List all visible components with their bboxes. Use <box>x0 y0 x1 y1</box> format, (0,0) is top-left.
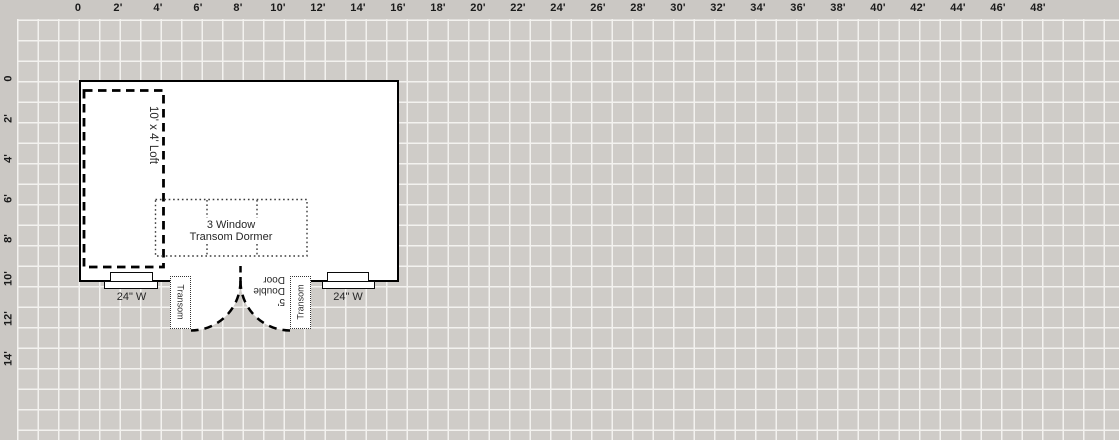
ruler-label-top: 16' <box>378 2 418 14</box>
ruler-label-top: 34' <box>738 2 778 14</box>
ruler-vertical: 02'4'6'8'10'12'14' <box>0 0 17 440</box>
dormer-label: 3 Window Transom Dormer <box>188 218 275 244</box>
ruler-label-left: 4' <box>0 138 17 178</box>
ruler-label-top: 10' <box>258 2 298 14</box>
ruler-label-top: 8' <box>218 2 258 14</box>
ruler-label-top: 14' <box>338 2 378 14</box>
ruler-horizontal: 02'4'6'8'10'12'14'16'18'20'22'24'26'28'3… <box>0 0 1119 19</box>
design-canvas[interactable]: 10' x 4' Loft 3 Window Transom Dormer 24… <box>0 0 1119 440</box>
loft-label: 10' x 4' Loft <box>147 106 159 164</box>
ruler-label-top: 4' <box>138 2 178 14</box>
ruler-label-top: 20' <box>458 2 498 14</box>
ruler-label-top: 42' <box>898 2 938 14</box>
ruler-label-top: 48' <box>1018 2 1058 14</box>
ruler-label-left: 8' <box>0 218 17 258</box>
ruler-label-top: 12' <box>298 2 338 14</box>
building-footprint[interactable] <box>79 80 399 282</box>
ruler-label-top: 18' <box>418 2 458 14</box>
ruler-label-top: 0 <box>58 2 98 14</box>
transom-right-label: Transom <box>296 285 306 320</box>
ruler-label-top: 38' <box>818 2 858 14</box>
ruler-label-top: 32' <box>698 2 738 14</box>
ruler-label-left: 6' <box>0 178 17 218</box>
window-left-sill[interactable] <box>104 281 158 289</box>
ruler-label-left: 0 <box>0 58 17 98</box>
ruler-label-top: 40' <box>858 2 898 14</box>
ruler-label-left: 2' <box>0 98 17 138</box>
dormer-label-line2: Transom Dormer <box>190 231 273 243</box>
transom-left[interactable]: Transom <box>170 276 191 329</box>
ruler-label-left: 14' <box>0 338 17 378</box>
ruler-label-top: 2' <box>98 2 138 14</box>
window-right-label: 24" W <box>318 291 378 303</box>
ruler-label-top: 22' <box>498 2 538 14</box>
door-label-line2: Double <box>251 285 285 296</box>
ruler-label-top: 26' <box>578 2 618 14</box>
ruler-label-top: 30' <box>658 2 698 14</box>
double-door-label: 5' Double Door <box>251 274 285 307</box>
door-label-line3: Door <box>251 274 285 285</box>
ruler-label-top: 36' <box>778 2 818 14</box>
ruler-label-left: 12' <box>0 298 17 338</box>
transom-left-label: Transom <box>176 285 186 320</box>
ruler-label-top: 24' <box>538 2 578 14</box>
transom-right[interactable]: Transom <box>290 276 311 329</box>
door-label-line1: 5' <box>251 296 285 307</box>
window-right-sill[interactable] <box>322 281 375 289</box>
ruler-label-top: 6' <box>178 2 218 14</box>
ruler-label-left: 10' <box>0 258 17 298</box>
ruler-label-top: 44' <box>938 2 978 14</box>
window-left-label: 24" W <box>102 291 162 303</box>
ruler-label-top: 46' <box>978 2 1018 14</box>
ruler-label-top: 28' <box>618 2 658 14</box>
dormer-label-line1: 3 Window <box>190 219 273 231</box>
